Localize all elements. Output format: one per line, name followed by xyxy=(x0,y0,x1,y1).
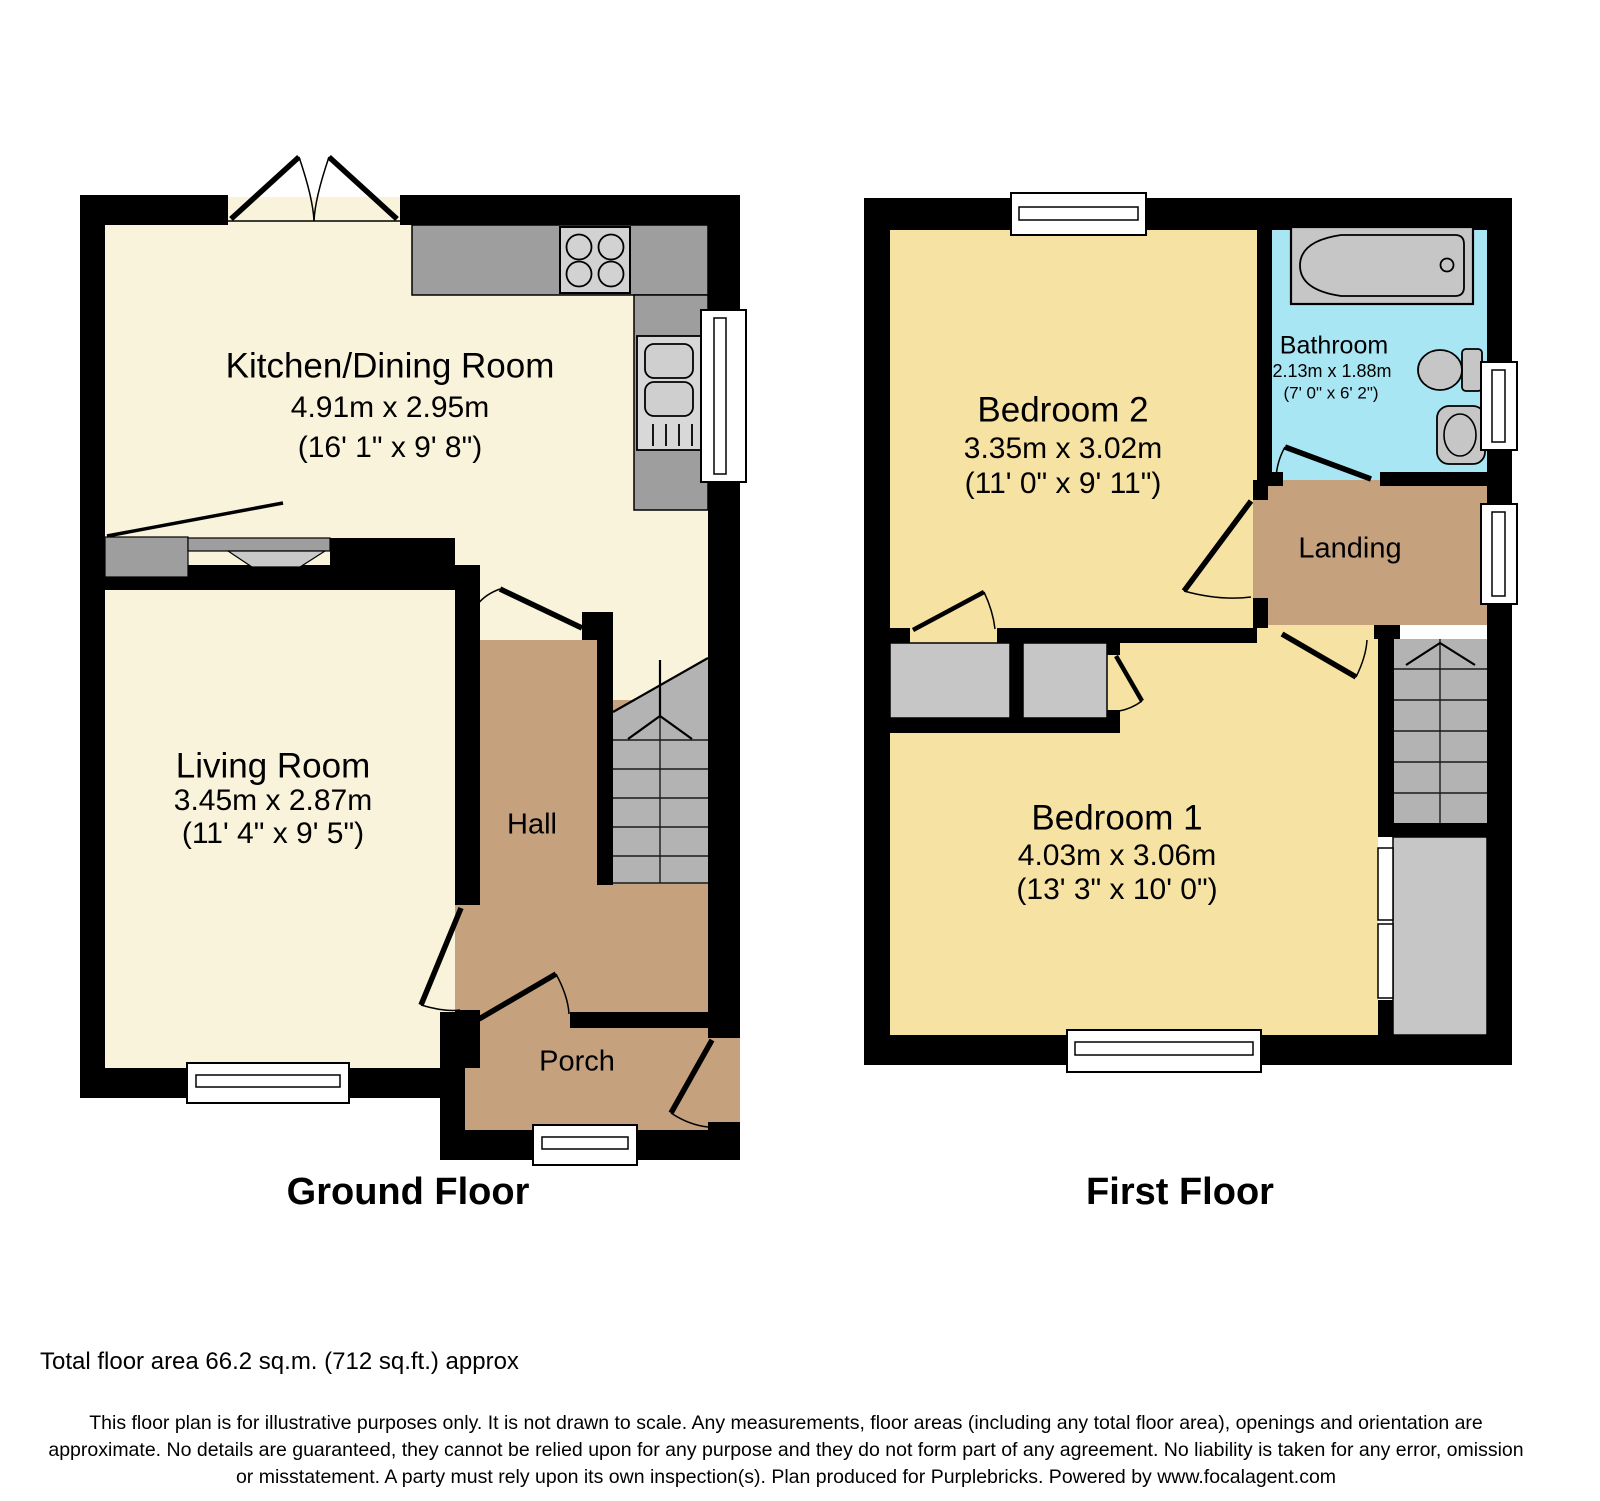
porch-window xyxy=(533,1125,637,1165)
bedroom2-label: Bedroom 2 xyxy=(977,393,1148,428)
first-floor-title: First Floor xyxy=(1086,1173,1274,1211)
living-dims-ft: (11' 4" x 9' 5") xyxy=(182,819,364,849)
wash-basin-icon xyxy=(1437,406,1485,464)
porch-floor xyxy=(440,1028,740,1130)
disclaimer-line-2: approximate. No details are guaranteed, … xyxy=(30,1437,1542,1464)
bedroom2-dims-m: 3.35m x 3.02m xyxy=(964,434,1162,464)
landing-window xyxy=(1481,504,1517,604)
living-dims-m: 3.45m x 2.87m xyxy=(174,786,372,816)
kitchen-label: Kitchen/Dining Room xyxy=(226,349,555,384)
first-floor-stairs xyxy=(1394,639,1487,823)
bedroom1-label: Bedroom 1 xyxy=(1031,801,1202,836)
kitchen-dims-ft: (16' 1" x 9' 8") xyxy=(298,433,483,463)
floorplan-page: Kitchen/Dining Room 4.91m x 2.95m (16' 1… xyxy=(0,0,1600,1501)
bedroom2-dims-ft: (11' 0" x 9' 11") xyxy=(965,469,1162,499)
disclaimer-line-3: or misstatement. A party must rely upon … xyxy=(30,1464,1542,1491)
bedroom2-window xyxy=(1011,193,1146,235)
kitchen-dims-m: 4.91m x 2.95m xyxy=(291,393,489,423)
disclaimer-line-1: This floor plan is for illustrative purp… xyxy=(30,1410,1542,1437)
bathroom-window xyxy=(1481,362,1517,450)
disclaimer-text: This floor plan is for illustrative purp… xyxy=(30,1410,1542,1491)
toilet-icon xyxy=(1418,349,1482,391)
landing-label: Landing xyxy=(1298,535,1401,564)
kitchen-sink-icon xyxy=(637,336,701,450)
bedroom1-cupboard xyxy=(1023,643,1107,718)
hall-label: Hall xyxy=(507,811,557,840)
ground-floor-title: Ground Floor xyxy=(287,1173,530,1211)
ground-floor-plan xyxy=(80,157,746,1165)
bedroom1-wardrobe xyxy=(1393,837,1487,1035)
bedroom2-cupboard xyxy=(890,643,1010,718)
living-room-label: Living Room xyxy=(176,749,371,784)
total-floor-area: Total floor area 66.2 sq.m. (712 sq.ft.)… xyxy=(40,1348,519,1376)
living-room-window xyxy=(187,1063,349,1103)
bedroom1-window xyxy=(1067,1030,1261,1072)
bedroom1-dims-ft: (13' 3" x 10' 0") xyxy=(1016,875,1217,905)
bath-icon xyxy=(1291,227,1473,304)
bathroom-label: Bathroom xyxy=(1280,334,1388,359)
first-floor-plan xyxy=(864,193,1517,1072)
bathroom-dims-m: 2.13m x 1.88m xyxy=(1272,362,1391,380)
bathroom-dims-ft: (7' 0" x 6' 2") xyxy=(1283,385,1378,402)
bedroom1-dims-m: 4.03m x 3.06m xyxy=(1018,841,1216,871)
porch-label: Porch xyxy=(539,1048,615,1077)
hob-icon xyxy=(560,227,630,293)
kitchen-window xyxy=(701,310,746,482)
